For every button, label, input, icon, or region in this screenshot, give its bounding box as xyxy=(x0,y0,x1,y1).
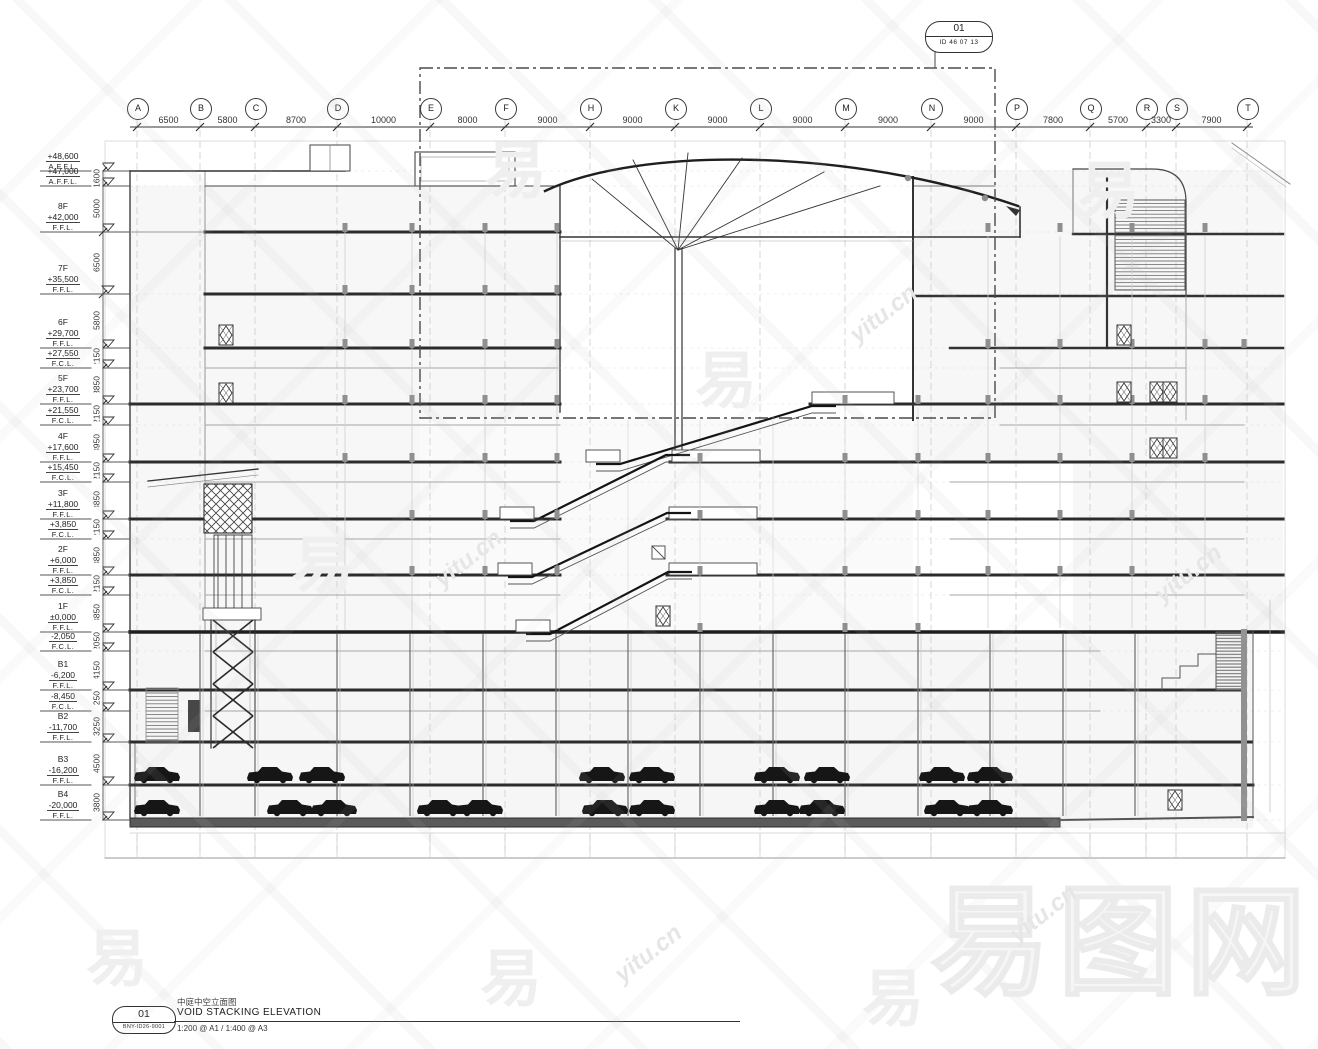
level-value: +27,550 xyxy=(46,348,81,359)
level-label: 8F+42,000F.F.L. xyxy=(24,201,102,233)
damper-symbol xyxy=(1150,438,1164,458)
stair-hatch xyxy=(1216,632,1244,690)
title-block: 中庭中空立面图 01 BNY-ID26-9001 VOID STACKING E… xyxy=(105,996,765,1038)
grid-bubble-Q: Q xyxy=(1080,98,1102,120)
grid-dim: 6500 xyxy=(158,115,178,125)
drawing-number: BNY-ID26-9001 xyxy=(113,1023,175,1032)
level-name: 2F xyxy=(24,544,102,554)
level-label: B1-6,200F.F.L. xyxy=(24,659,102,691)
datum-triangle xyxy=(102,734,114,741)
level-name: B3 xyxy=(24,754,102,764)
datum-triangle xyxy=(102,777,114,784)
level-value: +3,850 xyxy=(48,519,78,530)
grid-dim: 9000 xyxy=(792,115,812,125)
level-datum: F.C.L. xyxy=(24,359,102,369)
grid-dim: 9000 xyxy=(963,115,983,125)
level-value: +3,850 xyxy=(48,575,78,586)
damper-symbol xyxy=(219,325,233,345)
column-marker xyxy=(555,285,560,294)
column-marker xyxy=(483,223,488,232)
level-label: 5F+23,700F.F.L. xyxy=(24,373,102,405)
level-label: +27,550F.C.L. xyxy=(24,347,102,369)
datum-triangle xyxy=(102,531,114,538)
level-datum: F.F.L. xyxy=(24,285,102,295)
elevation-linework xyxy=(0,0,1318,1049)
level-value: +21,550 xyxy=(46,405,81,416)
grid-dim: 7900 xyxy=(1201,115,1221,125)
tree-column xyxy=(592,153,880,458)
detail-number-oval: 01 BNY-ID26-9001 xyxy=(112,1006,176,1034)
column-marker xyxy=(843,623,848,632)
column-marker xyxy=(1242,339,1247,348)
level-name: 8F xyxy=(24,201,102,211)
column-marker xyxy=(843,510,848,519)
level-value: -8,450 xyxy=(49,691,77,702)
level-name: 1F xyxy=(24,601,102,611)
level-name: B4 xyxy=(24,789,102,799)
damper-symbol xyxy=(1163,382,1177,402)
column-marker xyxy=(1130,453,1135,462)
level-datum: A.F.F.L. xyxy=(24,177,102,187)
grid-bubble-L: L xyxy=(750,98,772,120)
level-datum: F.C.L. xyxy=(24,530,102,540)
detail-callout: 01 ID 46 07 13 xyxy=(925,21,993,53)
column-marker xyxy=(916,395,921,404)
level-value: ±0,000 xyxy=(48,612,78,623)
column-marker xyxy=(916,510,921,519)
level-datum: F.F.L. xyxy=(24,776,102,786)
level-datum: F.C.L. xyxy=(24,416,102,426)
grid-bubble-F: F xyxy=(495,98,517,120)
datum-triangle xyxy=(102,178,114,185)
level-value: +35,500 xyxy=(46,274,81,285)
column-marker xyxy=(483,285,488,294)
datum-triangle xyxy=(102,474,114,481)
column-marker xyxy=(483,566,488,575)
column-marker xyxy=(483,453,488,462)
column-marker xyxy=(698,453,703,462)
crosshatch-panel xyxy=(204,484,252,533)
column-marker xyxy=(986,566,991,575)
datum-triangle xyxy=(102,511,114,518)
grid-bubble-D: D xyxy=(327,98,349,120)
column-marker xyxy=(483,510,488,519)
column-marker xyxy=(343,285,348,294)
column-marker xyxy=(410,566,415,575)
column-marker xyxy=(410,510,415,519)
column-marker xyxy=(916,623,921,632)
datum-triangle xyxy=(102,360,114,367)
level-label: 7F+35,500F.F.L. xyxy=(24,263,102,295)
damper-symbol xyxy=(1117,382,1131,402)
level-label: -8,450F.C.L. xyxy=(24,690,102,712)
level-label: 3F+11,800F.F.L. xyxy=(24,488,102,520)
column-marker xyxy=(1203,223,1208,232)
column-marker xyxy=(843,395,848,404)
column-marker xyxy=(698,623,703,632)
left-louver-panel xyxy=(146,688,178,742)
column-marker xyxy=(343,395,348,404)
level-label: 6F+29,700F.F.L. xyxy=(24,317,102,349)
level-label: B2-11,700F.F.L. xyxy=(24,711,102,743)
column-marker xyxy=(1058,395,1063,404)
datum-triangle xyxy=(102,286,114,293)
datum-triangle xyxy=(102,454,114,461)
column-marker xyxy=(986,223,991,232)
column-marker xyxy=(986,395,991,404)
grid-dim: 5700 xyxy=(1108,115,1128,125)
datum-triangle xyxy=(102,812,114,819)
damper-symbol xyxy=(219,383,233,403)
grid-bubble-P: P xyxy=(1006,98,1028,120)
column-marker xyxy=(1203,395,1208,404)
column-marker xyxy=(555,395,560,404)
louver-panel xyxy=(1115,200,1185,290)
level-value: +42,000 xyxy=(46,212,81,223)
grid-dim: 9000 xyxy=(707,115,727,125)
level-label: +15,450F.C.L. xyxy=(24,461,102,483)
level-name: 4F xyxy=(24,431,102,441)
damper-symbol xyxy=(1117,325,1131,345)
column-marker xyxy=(555,566,560,575)
grid-bubble-K: K xyxy=(665,98,687,120)
column-marker xyxy=(986,510,991,519)
grid-bubble-A: A xyxy=(127,98,149,120)
level-value: +17,600 xyxy=(46,442,81,453)
column-marker xyxy=(986,339,991,348)
damper-symbol xyxy=(1150,382,1164,402)
level-label: 1F±0,000F.F.L. xyxy=(24,601,102,633)
level-name: 3F xyxy=(24,488,102,498)
column-marker xyxy=(986,453,991,462)
b4-raft-slab xyxy=(130,818,1060,827)
grid-bubble-C: C xyxy=(245,98,267,120)
level-datum: F.C.L. xyxy=(24,586,102,596)
column-marker xyxy=(916,566,921,575)
level-value: +11,800 xyxy=(46,499,80,510)
level-datum: F.C.L. xyxy=(24,473,102,483)
level-value: +48,600 xyxy=(46,151,81,162)
detail-number: 01 xyxy=(113,1007,175,1023)
column-marker xyxy=(555,223,560,232)
column-marker xyxy=(1130,510,1135,519)
datum-triangle xyxy=(102,703,114,710)
datum-triangle xyxy=(102,396,114,403)
column-marker xyxy=(1203,339,1208,348)
level-name: 7F xyxy=(24,263,102,273)
column-marker xyxy=(698,510,703,519)
grid-bubble-B: B xyxy=(190,98,212,120)
column-marker xyxy=(410,395,415,404)
grid-dim: 9000 xyxy=(537,115,557,125)
level-datum: F.F.L. xyxy=(24,811,102,821)
level-name: B2 xyxy=(24,711,102,721)
column-marker xyxy=(1058,510,1063,519)
column-marker xyxy=(555,453,560,462)
column-marker xyxy=(843,453,848,462)
grid-bubble-T: T xyxy=(1237,98,1259,120)
grid-dim: 7800 xyxy=(1043,115,1063,125)
level-label: B4-20,000F.F.L. xyxy=(24,789,102,821)
datum-triangle xyxy=(102,587,114,594)
level-label: 2F+6,000F.F.L. xyxy=(24,544,102,576)
level-label: +47,000A.F.F.L. xyxy=(24,165,102,187)
drawing-title-en: VOID STACKING ELEVATION xyxy=(177,1007,321,1018)
column-marker xyxy=(410,339,415,348)
grid-dim: 9000 xyxy=(622,115,642,125)
column-marker xyxy=(555,339,560,348)
level-value: -6,200 xyxy=(49,670,77,681)
level-value: +29,700 xyxy=(46,328,81,339)
level-name: 5F xyxy=(24,373,102,383)
grid-bubble-N: N xyxy=(921,98,943,120)
title-underline xyxy=(174,1021,740,1022)
column-marker xyxy=(483,339,488,348)
level-value: +15,450 xyxy=(46,462,81,473)
grid-bubble-S: S xyxy=(1166,98,1188,120)
callout-number: 01 xyxy=(926,22,992,37)
level-label: 4F+17,600F.F.L. xyxy=(24,431,102,463)
level-value: +47,000 xyxy=(46,166,81,177)
callout-id: ID 46 07 13 xyxy=(926,37,992,49)
column-marker xyxy=(1058,566,1063,575)
level-value: +23,700 xyxy=(46,384,81,395)
column-marker xyxy=(410,453,415,462)
datum-triangle xyxy=(102,417,114,424)
level-label: -2,050F.C.L. xyxy=(24,630,102,652)
column-marker xyxy=(483,395,488,404)
column-marker xyxy=(1203,453,1208,462)
datum-triangle xyxy=(102,643,114,650)
grid-dim: 10000 xyxy=(371,115,396,125)
grid-dim: 5800 xyxy=(217,115,237,125)
level-name: 6F xyxy=(24,317,102,327)
column-marker xyxy=(1058,453,1063,462)
level-value: -11,700 xyxy=(47,722,79,733)
column-marker xyxy=(343,453,348,462)
grid-bubble-H: H xyxy=(580,98,602,120)
column-marker xyxy=(843,566,848,575)
grid-bubble-M: M xyxy=(835,98,857,120)
damper-symbol xyxy=(1163,438,1177,458)
column-marker xyxy=(698,566,703,575)
level-label: +21,550F.C.L. xyxy=(24,404,102,426)
column-marker xyxy=(1058,339,1063,348)
elevation-drawing-sheet: 01 ID 46 07 13 中庭中空立面图 01 BNY-ID26-9001 … xyxy=(0,0,1318,1049)
level-label: +3,850F.C.L. xyxy=(24,574,102,596)
grid-dim: 9000 xyxy=(878,115,898,125)
level-value: -20,000 xyxy=(47,800,80,811)
level-name: B1 xyxy=(24,659,102,669)
level-label: B3-16,200F.F.L. xyxy=(24,754,102,786)
damper-symbol xyxy=(656,606,670,626)
datum-triangle xyxy=(102,624,114,631)
column-marker xyxy=(410,285,415,294)
level-label: +3,850F.C.L. xyxy=(24,518,102,540)
level-value: -2,050 xyxy=(49,631,77,642)
damper-symbol xyxy=(1168,790,1182,810)
level-datum: F.F.L. xyxy=(24,223,102,233)
level-value: +6,000 xyxy=(48,555,78,566)
grid-dim: 8000 xyxy=(457,115,477,125)
level-datum: F.C.L. xyxy=(24,642,102,652)
column-marker xyxy=(1058,223,1063,232)
column-marker xyxy=(916,453,921,462)
level-datum: F.F.L. xyxy=(24,733,102,743)
column-marker xyxy=(555,510,560,519)
column-marker xyxy=(343,223,348,232)
shaft-core xyxy=(188,700,200,732)
column-marker xyxy=(410,223,415,232)
drawing-scale: 1:200 @ A1 / 1:400 @ A3 xyxy=(177,1024,268,1033)
grid-bubble-E: E xyxy=(420,98,442,120)
building-mass-fills xyxy=(130,170,1283,828)
level-value: -16,200 xyxy=(47,765,80,776)
column-marker xyxy=(1130,223,1135,232)
column-marker xyxy=(343,339,348,348)
column-marker xyxy=(1130,566,1135,575)
datum-triangle xyxy=(102,224,114,231)
datum-triangle xyxy=(102,163,114,170)
datum-triangle xyxy=(102,682,114,689)
grid-dim: 8700 xyxy=(286,115,306,125)
datum-triangle xyxy=(102,567,114,574)
datum-triangle xyxy=(102,340,114,347)
